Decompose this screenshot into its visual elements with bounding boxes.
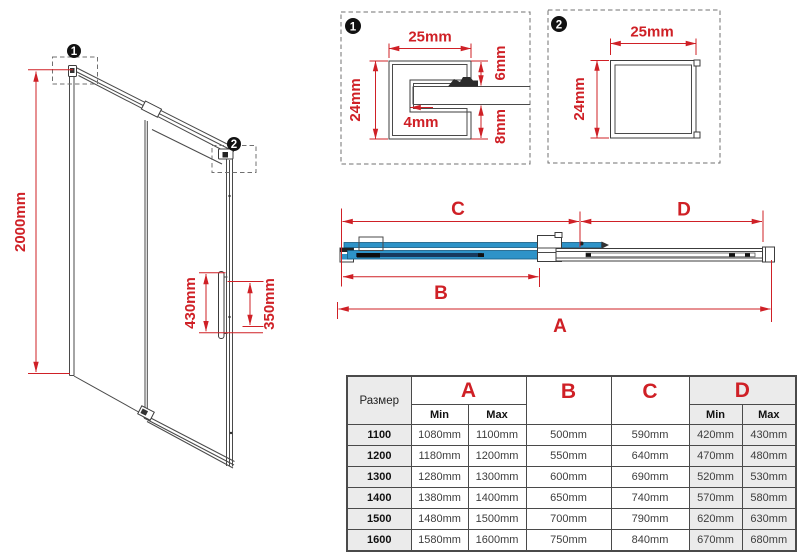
d-max-value: 630mm bbox=[742, 509, 796, 530]
height-dimension-label: 2000mm bbox=[12, 192, 29, 252]
plan-channel-mark1 bbox=[586, 253, 591, 256]
detail-1-width-label: 25mm bbox=[408, 29, 451, 46]
row-size-label: 1300 bbox=[347, 467, 411, 488]
row-size-label: 1100 bbox=[347, 425, 411, 446]
table-row: 1500 1480mm 1500mm 700mm 790mm 620mm 630… bbox=[347, 509, 796, 530]
size-header: Размер bbox=[347, 376, 411, 425]
table-row: 1400 1380mm 1400mm 650mm 740mm 570mm 580… bbox=[347, 488, 796, 509]
dim-d-label: D bbox=[677, 200, 691, 221]
b-value: 550mm bbox=[526, 446, 611, 467]
a-max-value: 1300mm bbox=[468, 467, 526, 488]
c-value: 640mm bbox=[611, 446, 689, 467]
profile-2-foot-bottom bbox=[694, 132, 700, 138]
a-min-value: 1580mm bbox=[411, 530, 468, 552]
detail-2-width-label: 25mm bbox=[630, 24, 673, 41]
detail-2-height-label: 24mm bbox=[571, 77, 588, 120]
table-row: 1200 1180mm 1200mm 550mm 640mm 470mm 480… bbox=[347, 446, 796, 467]
profile-2-foot-top bbox=[694, 60, 700, 66]
callout-1: 1 bbox=[53, 44, 98, 84]
a-max-value: 1500mm bbox=[468, 509, 526, 530]
plan-panel-stripe-end1 bbox=[357, 253, 380, 258]
table-row: 1600 1580mm 1600mm 750mm 840mm 670mm 680… bbox=[347, 530, 796, 552]
a-min-value: 1280mm bbox=[411, 467, 468, 488]
dim-c-label: C bbox=[451, 199, 465, 220]
a-min-value: 1080mm bbox=[411, 425, 468, 446]
profile-2-outer bbox=[611, 61, 697, 139]
callout-2-number: 2 bbox=[231, 139, 237, 151]
d-min-value: 570mm bbox=[689, 488, 742, 509]
detail-1: 1 25mm 24mm 4mm 6mm 8mm bbox=[341, 12, 530, 164]
row-size-label: 1600 bbox=[347, 530, 411, 552]
d-max-value: 430mm bbox=[742, 425, 796, 446]
screw-dots bbox=[228, 195, 232, 434]
front-view: 1 2 2000mm 430mm 350mm bbox=[12, 44, 278, 468]
d-min-value: 420mm bbox=[689, 425, 742, 446]
detail-1-bottom-gap-label: 8mm bbox=[492, 109, 509, 144]
d-max-value: 680mm bbox=[742, 530, 796, 552]
plan-right-wall-profile bbox=[763, 247, 775, 262]
column-d-header: D bbox=[689, 376, 796, 405]
d-max-value: 580mm bbox=[742, 488, 796, 509]
dim-b-label: B bbox=[434, 283, 448, 304]
detail-1-glass-label: 4mm bbox=[403, 114, 438, 131]
column-c-header: C bbox=[611, 376, 689, 425]
table-row: 1300 1280mm 1300mm 600mm 690mm 520mm 530… bbox=[347, 467, 796, 488]
d-min-value: 620mm bbox=[689, 509, 742, 530]
d-min-header: Min bbox=[689, 405, 742, 425]
b-value: 700mm bbox=[526, 509, 611, 530]
c-value: 840mm bbox=[611, 530, 689, 552]
a-max-header: Max bbox=[468, 405, 526, 425]
d-max-value: 530mm bbox=[742, 467, 796, 488]
detail-1-number: 1 bbox=[350, 22, 357, 34]
column-b-header: B bbox=[526, 376, 611, 425]
handle-outer-dimension-label: 430mm bbox=[182, 277, 199, 329]
d-max-header: Max bbox=[742, 405, 796, 425]
detail-2-number: 2 bbox=[556, 20, 562, 32]
size-table-container: Размер A B C D Min Max Min Max 1100 1080… bbox=[346, 375, 797, 552]
a-max-value: 1400mm bbox=[468, 488, 526, 509]
d-min-value: 470mm bbox=[689, 446, 742, 467]
floor-guide-bracket bbox=[138, 406, 155, 420]
a-max-value: 1600mm bbox=[468, 530, 526, 552]
a-min-value: 1180mm bbox=[411, 446, 468, 467]
detail-1-top-gap-label: 6mm bbox=[492, 45, 509, 80]
rail-roller-bracket bbox=[141, 101, 161, 117]
a-max-value: 1200mm bbox=[468, 446, 526, 467]
a-min-value: 1480mm bbox=[411, 509, 468, 530]
row-size-label: 1200 bbox=[347, 446, 411, 467]
table-row: 1100 1080mm 1100mm 500mm 590mm 420mm 430… bbox=[347, 425, 796, 446]
c-value: 790mm bbox=[611, 509, 689, 530]
dim-a-label: A bbox=[553, 316, 567, 337]
plan-channel-mark3 bbox=[745, 253, 750, 256]
handle-inner-dimension-label: 350mm bbox=[261, 278, 278, 330]
row-size-label: 1400 bbox=[347, 488, 411, 509]
b-value: 650mm bbox=[526, 488, 611, 509]
plan-rail-end bbox=[602, 242, 610, 249]
top-right-cap-detail bbox=[223, 152, 229, 158]
b-value: 750mm bbox=[526, 530, 611, 552]
column-a-header: A bbox=[411, 376, 526, 405]
d-max-value: 480mm bbox=[742, 446, 796, 467]
glass-panel-edge bbox=[413, 87, 530, 105]
top-left-cap-detail bbox=[70, 68, 75, 73]
detail-2: 2 25mm 24mm bbox=[548, 10, 720, 163]
a-min-value: 1380mm bbox=[411, 488, 468, 509]
callout-1-number: 1 bbox=[71, 46, 78, 58]
door-frame-lines bbox=[70, 67, 235, 468]
c-value: 690mm bbox=[611, 467, 689, 488]
size-table: Размер A B C D Min Max Min Max 1100 1080… bbox=[346, 375, 797, 552]
plan-center-roller-tab bbox=[555, 233, 562, 238]
c-value: 740mm bbox=[611, 488, 689, 509]
b-value: 600mm bbox=[526, 467, 611, 488]
detail-1-height-label: 24mm bbox=[347, 78, 364, 121]
a-max-value: 1100mm bbox=[468, 425, 526, 446]
c-value: 590mm bbox=[611, 425, 689, 446]
plan-channel-mark2 bbox=[729, 253, 735, 256]
plan-view-dimensions: C D B A bbox=[338, 199, 772, 337]
plan-view: C D B A bbox=[338, 199, 775, 337]
a-min-header: Min bbox=[411, 405, 468, 425]
b-value: 500mm bbox=[526, 425, 611, 446]
d-min-value: 670mm bbox=[689, 530, 742, 552]
row-size-label: 1500 bbox=[347, 509, 411, 530]
plan-panel-stripe-end2 bbox=[478, 253, 484, 257]
d-min-value: 520mm bbox=[689, 467, 742, 488]
